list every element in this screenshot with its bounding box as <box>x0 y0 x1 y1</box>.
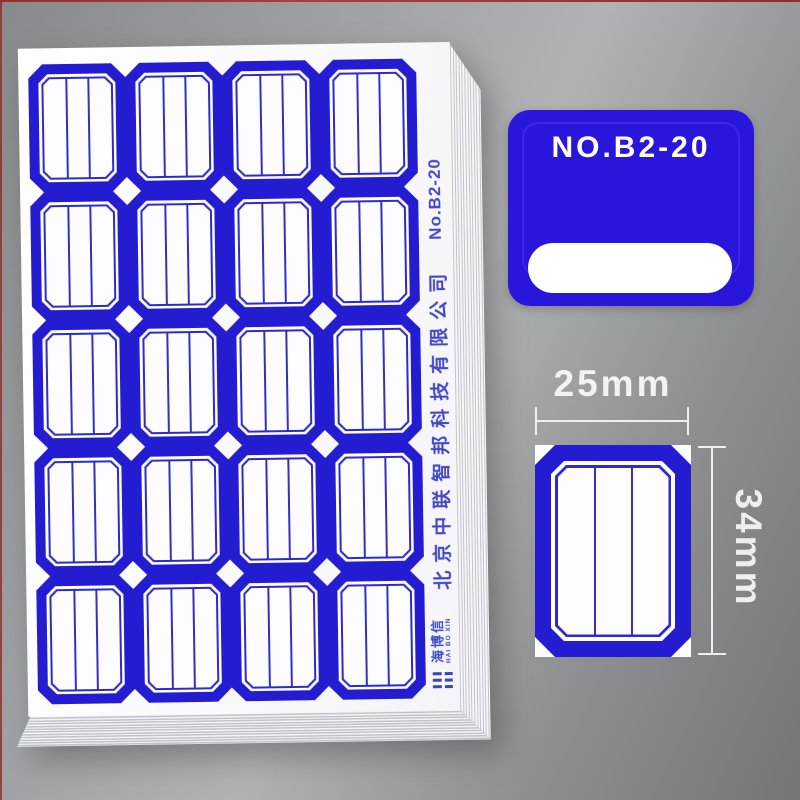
label-cell <box>327 570 426 700</box>
label-cell <box>325 442 424 572</box>
product-model-badge: NO.B2-20 <box>508 110 754 306</box>
badge-model-number: NO.B2-20 <box>508 131 754 165</box>
label-cell <box>224 188 323 318</box>
label-cell <box>228 444 327 574</box>
label-cell <box>127 190 226 320</box>
width-measure-line <box>536 420 689 422</box>
photo-edge-top <box>0 0 800 2</box>
brand-name-en: HAI BO XIN <box>446 618 453 664</box>
label-sheet-stack: 海博信 HAI BO XIN 北京中联智邦科技有限公司 No.B2-20 <box>18 42 460 717</box>
label-cell <box>131 445 230 575</box>
label-sheet: 海博信 HAI BO XIN 北京中联智邦科技有限公司 No.B2-20 <box>18 42 460 717</box>
width-measure-tick-right <box>687 407 689 435</box>
height-dimension-text: 34mm <box>728 483 768 613</box>
label-cell <box>321 186 420 316</box>
haiboxin-logo-icon <box>433 669 453 688</box>
brand-name-cn: 海博信 <box>431 618 445 663</box>
company-name: 北京中联智邦科技有限公司 <box>423 266 455 590</box>
label-cell <box>222 60 321 190</box>
label-cell <box>129 318 228 448</box>
label-cell <box>230 572 329 702</box>
label-grid <box>28 58 426 704</box>
brand-block: 海博信 HAI BO XIN <box>431 618 453 664</box>
height-measure-tick-top <box>698 446 726 448</box>
sheet-model-number: No.B2-20 <box>425 158 446 240</box>
label-cell <box>28 63 127 193</box>
label-cell <box>226 316 325 446</box>
photo-edge-left <box>0 0 2 800</box>
label-cell <box>36 575 135 705</box>
label-cell <box>34 447 133 577</box>
badge-white-pill <box>528 243 732 293</box>
label-cell <box>319 58 418 188</box>
label-cell <box>323 314 422 444</box>
width-dimension-text: 25mm <box>527 363 699 405</box>
height-measure-line <box>711 447 713 655</box>
height-measure-tick-bottom <box>698 653 726 655</box>
label-cell <box>125 62 224 192</box>
label-cell <box>32 319 131 449</box>
label-cell <box>133 573 232 703</box>
width-measure-tick-left <box>535 407 537 435</box>
label-cell <box>30 191 129 321</box>
dimension-sample-label <box>535 445 691 657</box>
